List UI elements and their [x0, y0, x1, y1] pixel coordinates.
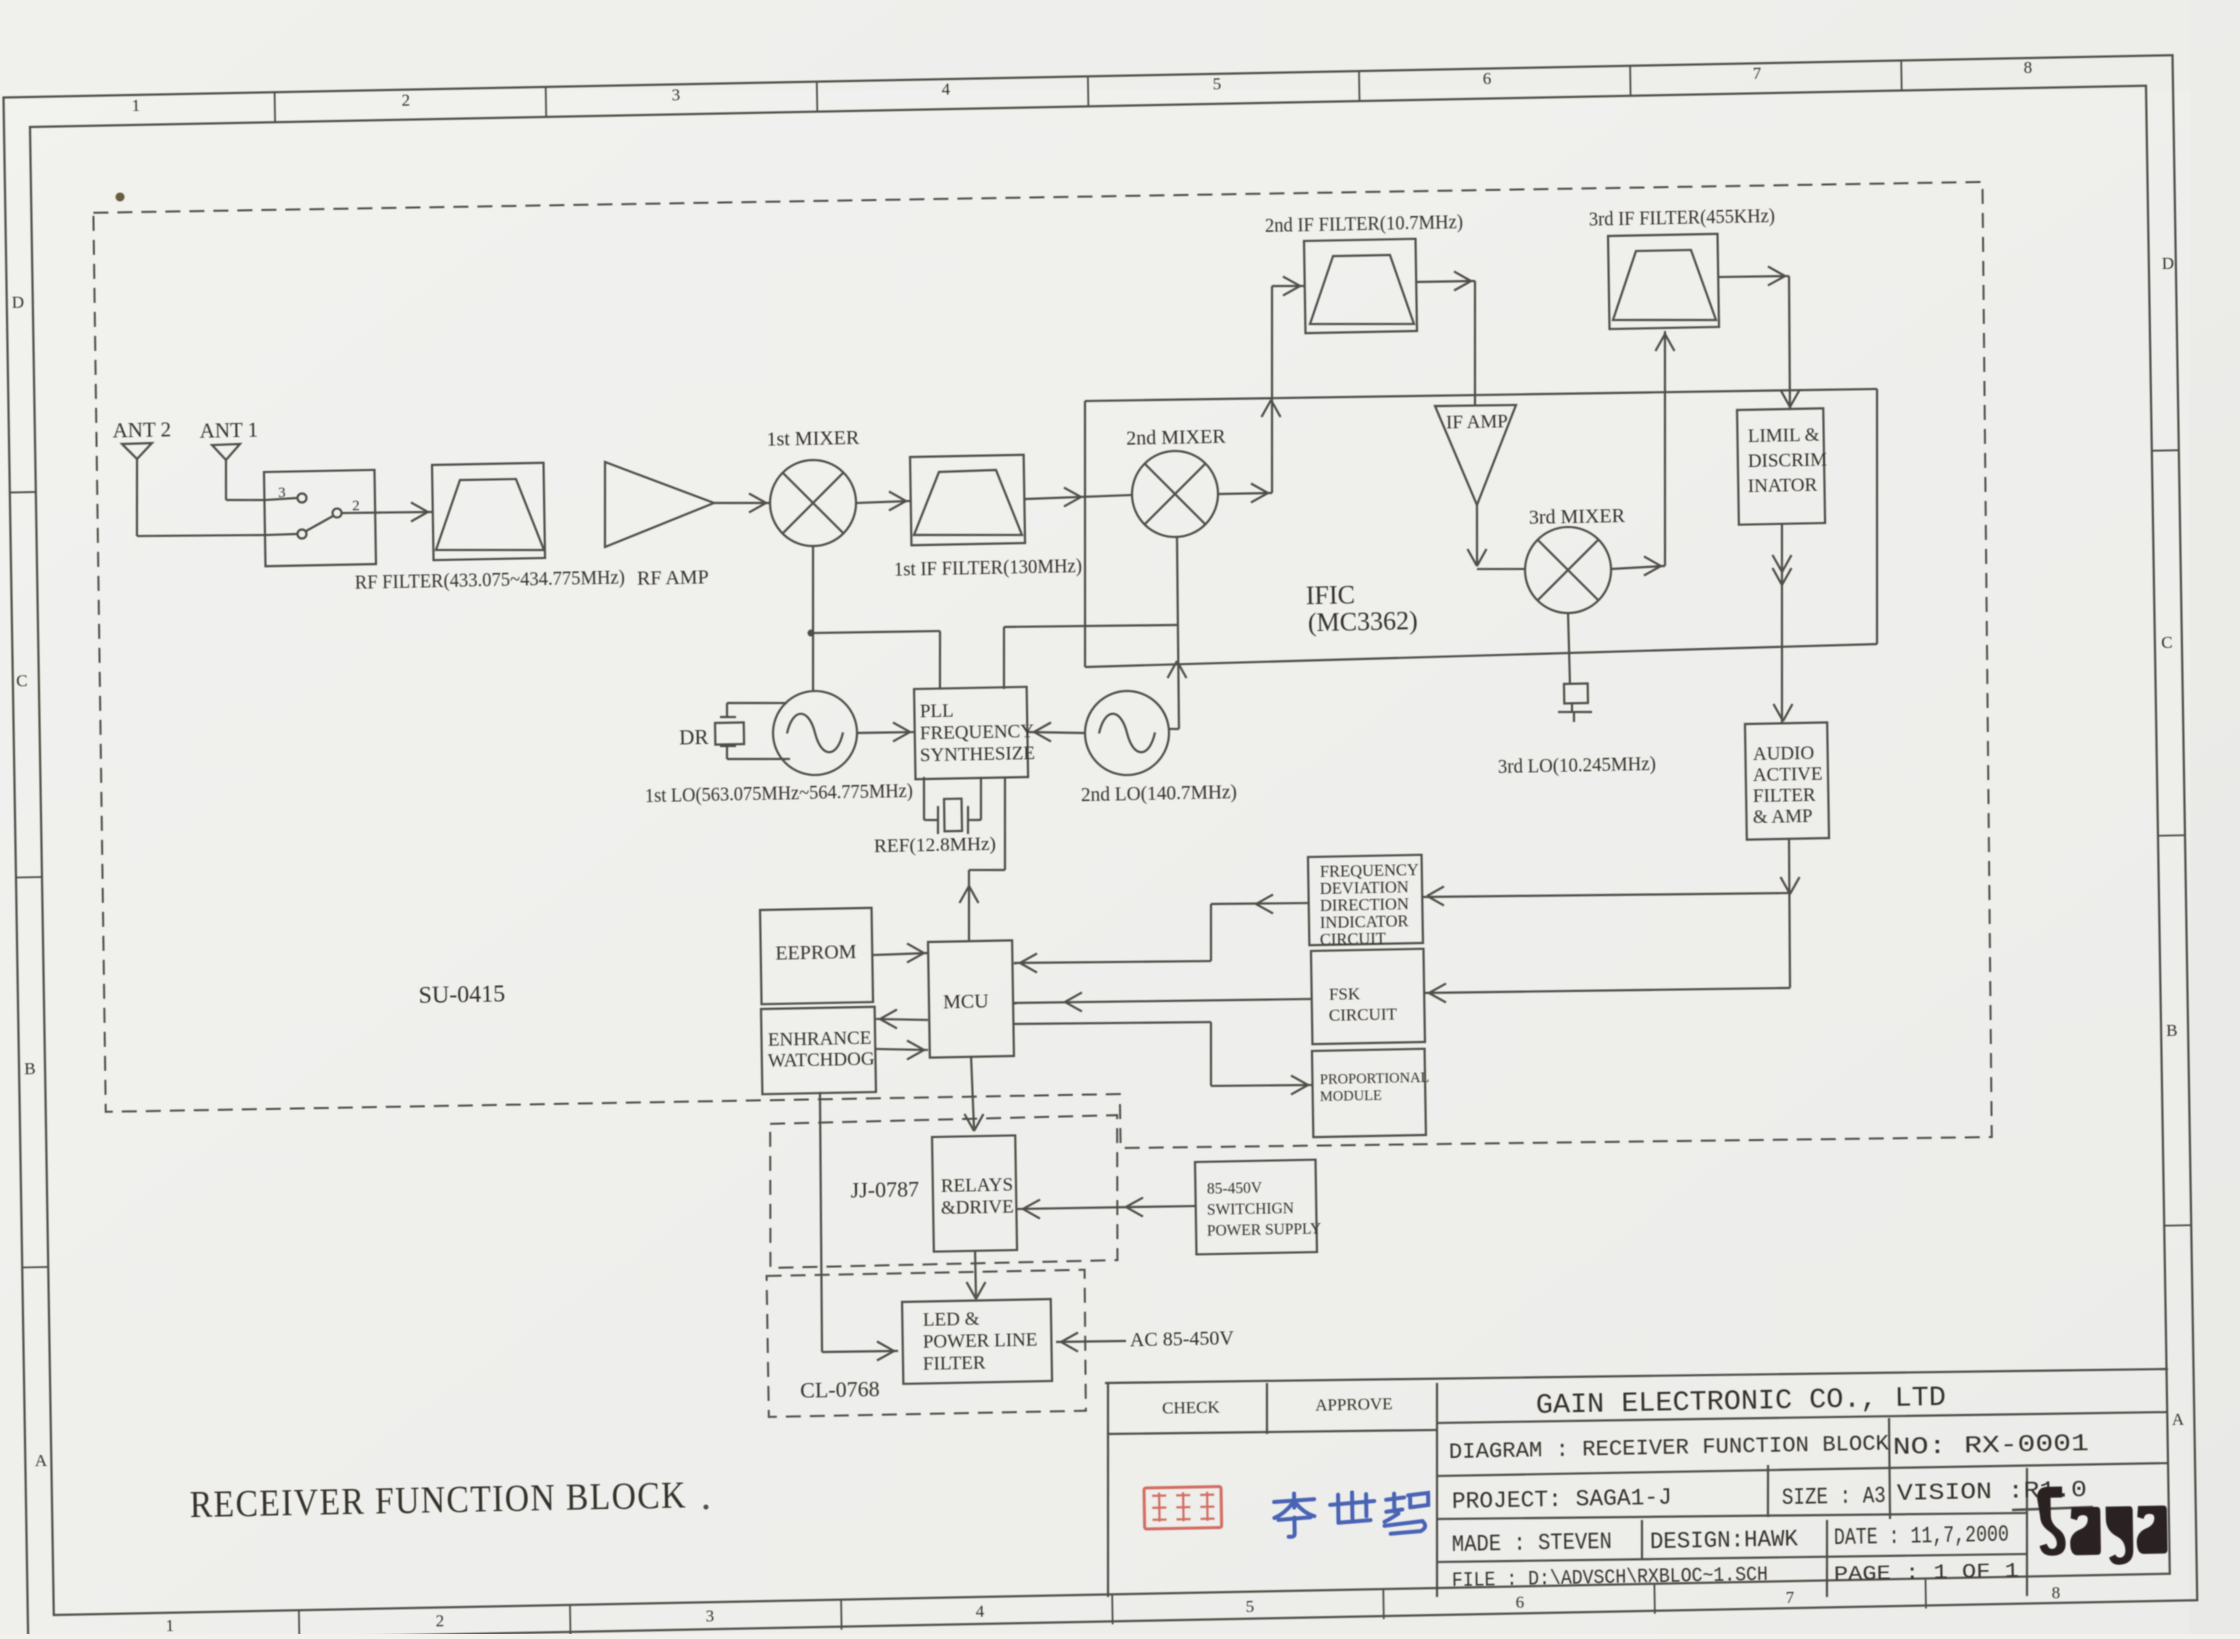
svg-text:1st IF FILTER(130MHz): 1st IF FILTER(130MHz): [894, 555, 1082, 581]
svg-text:ANT 2: ANT 2: [112, 417, 171, 442]
svg-text:DESIGN:HAWK: DESIGN:HAWK: [1650, 1526, 1799, 1555]
svg-text:A: A: [2172, 1410, 2185, 1429]
svg-text:EEPROM: EEPROM: [775, 941, 857, 965]
svg-text:85-450V: 85-450V: [1207, 1180, 1263, 1198]
svg-text:4: 4: [941, 80, 950, 99]
svg-text:APPROVE: APPROVE: [1315, 1394, 1393, 1415]
svg-text:5: 5: [1246, 1597, 1255, 1616]
svg-text:SYNTHESIZE: SYNTHESIZE: [920, 743, 1035, 766]
svg-text:ENHRANCE: ENHRANCE: [768, 1028, 872, 1051]
svg-text:B: B: [2166, 1021, 2178, 1040]
svg-text:CL-0768: CL-0768: [800, 1376, 880, 1403]
svg-text:7: 7: [1786, 1588, 1795, 1607]
svg-text:2nd IF FILTER(10.7MHz): 2nd IF FILTER(10.7MHz): [1265, 211, 1463, 237]
svg-text:2nd LO(140.7MHz): 2nd LO(140.7MHz): [1081, 782, 1237, 806]
svg-text:AC 85-450V: AC 85-450V: [1130, 1327, 1235, 1351]
svg-text:PROJECT: SAGA1-J: PROJECT: SAGA1-J: [1452, 1485, 1672, 1515]
svg-text:POWER LINE: POWER LINE: [923, 1330, 1038, 1353]
svg-text:PLL: PLL: [920, 700, 954, 722]
svg-text:A: A: [35, 1451, 48, 1470]
svg-text:MADE : STEVEN: MADE : STEVEN: [1452, 1529, 1612, 1558]
svg-text:2: 2: [352, 498, 360, 514]
svg-text:D: D: [12, 293, 25, 312]
svg-text:8: 8: [2024, 58, 2033, 77]
svg-text:JJ-0787: JJ-0787: [850, 1176, 919, 1202]
svg-text:6: 6: [1516, 1592, 1525, 1611]
svg-text:LIMIL &: LIMIL &: [1748, 425, 1820, 447]
svg-text:INATOR: INATOR: [1748, 475, 1818, 497]
svg-text:B: B: [24, 1059, 36, 1078]
svg-text:IFIC: IFIC: [1306, 580, 1356, 610]
svg-text:SIZE : A3: SIZE : A3: [1782, 1483, 1886, 1511]
svg-text:D: D: [2162, 254, 2175, 273]
svg-text:1st MIXER: 1st MIXER: [766, 427, 860, 451]
svg-text:4: 4: [976, 1602, 985, 1621]
svg-text:3: 3: [671, 85, 680, 104]
svg-text:& AMP: & AMP: [1753, 806, 1813, 828]
svg-text:1: 1: [165, 1616, 174, 1634]
svg-text:IF AMP: IF AMP: [1446, 411, 1508, 433]
svg-text:&DRIVE: &DRIVE: [941, 1197, 1014, 1219]
svg-text:SU-0415: SU-0415: [418, 981, 505, 1009]
svg-text:C: C: [2161, 633, 2173, 652]
svg-text:3rd IF FILTER(455KHz): 3rd IF FILTER(455KHz): [1589, 205, 1775, 231]
svg-text:3rd LO(10.245MHz): 3rd LO(10.245MHz): [1498, 754, 1656, 778]
svg-text:AUDIO: AUDIO: [1753, 743, 1815, 765]
svg-text:(MC3362): (MC3362): [1308, 606, 1418, 637]
svg-text:MODULE: MODULE: [1320, 1088, 1382, 1105]
svg-text:FREQUENCY: FREQUENCY: [920, 721, 1035, 744]
svg-text:2: 2: [401, 90, 410, 109]
svg-text:ACTIVE: ACTIVE: [1753, 764, 1823, 786]
svg-text:FILTER: FILTER: [923, 1353, 986, 1375]
svg-text:ANT 1: ANT 1: [199, 417, 258, 442]
svg-text:SWITCHIGN: SWITCHIGN: [1207, 1200, 1294, 1219]
svg-text:5: 5: [1213, 74, 1222, 93]
svg-text:RF AMP: RF AMP: [637, 566, 709, 589]
svg-text:WATCHDOG: WATCHDOG: [768, 1049, 875, 1072]
svg-text:DISCRIM: DISCRIM: [1748, 449, 1828, 472]
svg-text:POWER SUPPLY: POWER SUPPLY: [1207, 1221, 1322, 1240]
svg-text:PROPORTIONAL: PROPORTIONAL: [1320, 1070, 1430, 1088]
svg-text:DR: DR: [679, 725, 709, 750]
svg-text:7: 7: [1753, 64, 1762, 83]
svg-text:MCU: MCU: [943, 991, 989, 1014]
svg-text:2: 2: [435, 1611, 444, 1630]
svg-text:NO: RX-0001: NO: RX-0001: [1893, 1431, 2089, 1462]
svg-text:8: 8: [2052, 1583, 2061, 1602]
svg-text:FSK: FSK: [1329, 984, 1361, 1004]
svg-text:FILTER: FILTER: [1753, 785, 1816, 807]
svg-text:3rd MIXER: 3rd MIXER: [1529, 505, 1626, 529]
svg-text:CIRCUIT: CIRCUIT: [1320, 929, 1386, 949]
svg-text:CHECK: CHECK: [1162, 1397, 1221, 1417]
svg-text:CIRCUIT: CIRCUIT: [1329, 1005, 1398, 1025]
svg-text:6: 6: [1483, 69, 1492, 88]
svg-text:RELAYS: RELAYS: [941, 1175, 1013, 1197]
svg-text:DATE : 11,7,2000: DATE : 11,7,2000: [1834, 1522, 2009, 1551]
svg-text:PAGE : 1 OF 1: PAGE : 1 OF 1: [1834, 1560, 2019, 1587]
svg-text:REF(12.8MHz): REF(12.8MHz): [874, 834, 996, 857]
svg-text:1: 1: [131, 96, 140, 115]
svg-text:LED &: LED &: [923, 1309, 980, 1331]
svg-text:C: C: [16, 671, 28, 690]
svg-text:3: 3: [706, 1607, 715, 1626]
svg-text:2nd MIXER: 2nd MIXER: [1126, 426, 1226, 450]
